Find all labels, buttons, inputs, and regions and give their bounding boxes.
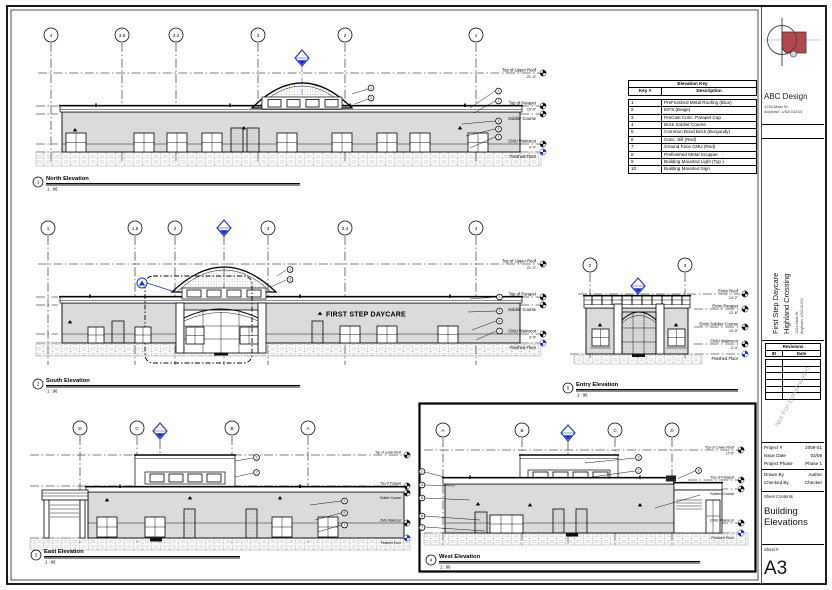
key-row: 7Ground Face CMU (Red) xyxy=(629,144,757,151)
foundation-hatch xyxy=(30,538,410,550)
svg-text:CMU Wainscot: CMU Wainscot xyxy=(710,339,739,344)
svg-text:7: 7 xyxy=(499,329,501,333)
svg-text:17'-6": 17'-6" xyxy=(726,451,734,455)
section-marker-icon xyxy=(153,423,167,439)
svg-text:1 : 96: 1 : 96 xyxy=(577,393,588,398)
key-col-header: Key # xyxy=(629,88,662,95)
svg-text:CMU Wainscot: CMU Wainscot xyxy=(710,519,734,523)
svg-text:5: 5 xyxy=(344,499,346,503)
svg-text:East Elevation: East Elevation xyxy=(44,549,84,555)
svg-text:1 : 96: 1 : 96 xyxy=(47,187,58,192)
svg-text:Entry Soldier Course: Entry Soldier Course xyxy=(699,322,738,327)
svg-text:8: 8 xyxy=(698,469,700,473)
grid-bubble-label: 3.6 xyxy=(119,33,126,38)
svg-text:3: 3 xyxy=(638,456,640,460)
grid-bubble-label: 3.4 xyxy=(342,226,349,231)
svg-text:Top of Parapet: Top of Parapet xyxy=(711,476,734,480)
firm-logo xyxy=(762,10,823,90)
svg-text:1 : 96: 1 : 96 xyxy=(45,560,56,565)
checked-by-field: Checked ByChecker xyxy=(764,479,822,487)
svg-text:2: 2 xyxy=(421,470,423,474)
key-row: 9Building Mounted Light (Typ.) xyxy=(629,159,757,166)
west-elevation-view: A B C D 2 3 5 6 7 3 2 8 Top of L xyxy=(419,404,755,572)
drawn-by-field: Drawn ByAuthor xyxy=(764,471,822,479)
logo-red-shape xyxy=(782,32,806,53)
grid-bubble-label: 3 xyxy=(267,226,270,231)
svg-text:10'-0": 10'-0" xyxy=(729,329,739,333)
north-elevation-view: 4 3.6 3.2 3 2 1 1 2 3 2 5 6 7 To xyxy=(33,28,546,192)
svg-text:6: 6 xyxy=(498,127,500,131)
svg-text:21'-4": 21'-4" xyxy=(527,75,537,79)
svg-text:Top of Parapet: Top of Parapet xyxy=(509,101,537,106)
svg-text:North Elevation: North Elevation xyxy=(46,176,89,182)
svg-text:CMU Wainscot: CMU Wainscot xyxy=(508,329,537,334)
svg-text:Top of Upper Roof: Top of Upper Roof xyxy=(502,259,537,264)
svg-text:Top of Lower Roof: Top of Lower Roof xyxy=(375,451,401,455)
revisions-col-date: Date xyxy=(783,350,821,357)
project-address-line2: Anytown, USA 01234 xyxy=(800,298,804,334)
sheet-contents: Building Elevations xyxy=(764,506,820,528)
entry-vestibule xyxy=(673,483,723,533)
svg-text:7: 7 xyxy=(421,526,423,530)
grid-bubble-label: 3.2 xyxy=(173,33,180,38)
grid-bubble-label: 1 xyxy=(475,33,478,38)
svg-text:Finished Floor: Finished Floor xyxy=(711,536,735,540)
elevation-key-table: Elevation Key Key #Description 1PreFinis… xyxy=(628,80,757,174)
grid-bubble-label: 4 xyxy=(475,226,478,231)
grid-bubble-label: 4 xyxy=(50,33,53,38)
title-block: ABC Design 1234 Main St. Anytown, USA 01… xyxy=(762,6,824,584)
revisions-col-id: ID xyxy=(766,350,783,357)
project-name-line1: First Step Daycare xyxy=(771,273,780,334)
sheet-number-label: Sheet # xyxy=(764,547,778,552)
project-address-line1: 1234 Main St. xyxy=(795,311,799,334)
canopy-structure xyxy=(42,490,88,538)
west-view-title: 4 West Elevation 1 : 96 xyxy=(426,554,700,570)
section-marker-icon xyxy=(295,50,309,66)
svg-text:15'-4": 15'-4" xyxy=(527,107,537,111)
entry-feature xyxy=(614,304,664,357)
building-sign: FIRST STEP DAYCARE xyxy=(326,312,406,319)
svg-text:Entry Parapet: Entry Parapet xyxy=(712,304,738,309)
svg-text:1: 1 xyxy=(289,268,291,272)
south-view-title: 2 South Elevation 1 : 96 xyxy=(33,378,300,394)
key-row: 6Conc. Sill (Red) xyxy=(629,136,757,143)
level-markers: Entry Roof14'-2" Entry Parapet12'-6" Ent… xyxy=(699,289,748,362)
north-view-title: 1 North Elevation 1 : 96 xyxy=(33,176,300,192)
key-row: 4Brick Soldier Course xyxy=(629,122,757,129)
foundation-hatch xyxy=(424,533,748,545)
revisions-title: Revisions xyxy=(766,344,821,351)
svg-text:3'-4": 3'-4" xyxy=(731,346,739,350)
svg-text:6: 6 xyxy=(499,319,501,323)
svg-text:3'-4": 3'-4" xyxy=(529,145,537,149)
svg-text:Finished Floor: Finished Floor xyxy=(711,356,738,361)
key-row: 5Common Bond Brick (Burgundy) xyxy=(629,129,757,136)
east-elevation-view: D C B A 3 2 5 6 7 Top of Lower Roof To xyxy=(30,421,410,565)
key-row: 3PreCast Conc. Parapet Cap xyxy=(629,114,757,121)
svg-text:Soldier Course: Soldier Course xyxy=(710,492,734,496)
grid-bubble-label: 1.8 xyxy=(132,226,139,231)
key-row: 8Prefinished Metal Scupper xyxy=(629,151,757,158)
drawing-sheet: 4 3.6 3.2 3 2 1 1 2 3 2 5 6 7 To xyxy=(0,0,832,590)
svg-text:Soldier Course: Soldier Course xyxy=(508,307,536,312)
grid-bubble-label: 2 xyxy=(174,226,177,231)
svg-text:2: 2 xyxy=(370,96,372,100)
svg-text:5: 5 xyxy=(498,119,500,123)
firm-address: 1234 Main St. Anytown, USA 01234 xyxy=(764,104,802,114)
svg-text:1 : 96: 1 : 96 xyxy=(47,389,58,394)
entry-feature xyxy=(176,303,266,356)
svg-text:2: 2 xyxy=(256,471,258,475)
grid-bubble-label: B xyxy=(520,428,523,433)
grid-bubble-label: 3 xyxy=(684,263,687,268)
svg-text:Top of Parapet: Top of Parapet xyxy=(380,482,401,486)
svg-text:1 : 96: 1 : 96 xyxy=(440,565,451,570)
svg-text:1: 1 xyxy=(370,86,372,90)
south-elevation-view: 1 1.8 2 3 3.4 4 FIRST STEP DAYCARE xyxy=(33,220,546,394)
project-number-field: Project #2009-01 xyxy=(764,444,822,452)
section-marker-icon xyxy=(217,220,231,236)
svg-text:2: 2 xyxy=(498,99,500,103)
svg-text:12'-6": 12'-6" xyxy=(729,311,739,315)
grid-bubble-label: B xyxy=(230,426,233,431)
svg-text:2: 2 xyxy=(289,278,291,282)
svg-text:7: 7 xyxy=(344,523,346,527)
svg-text:West Elevation: West Elevation xyxy=(439,554,481,560)
svg-text:Finished Floor: Finished Floor xyxy=(509,154,536,159)
project-name-line2: Highland Crossing xyxy=(782,274,791,334)
desc-col-header: Description xyxy=(662,88,757,95)
entry-view-title: 5 Entry Elevation 1 : 96 xyxy=(563,382,738,398)
scupper xyxy=(666,476,676,482)
svg-text:Top of Parapet: Top of Parapet xyxy=(509,292,537,297)
elevation-callout-marker xyxy=(137,278,172,291)
key-table-title: Elevation Key xyxy=(629,81,757,88)
svg-text:21'-4": 21'-4" xyxy=(527,266,537,270)
grid-bubble-label: 1 xyxy=(47,226,50,231)
svg-text:Entry Elevation: Entry Elevation xyxy=(576,382,619,388)
svg-text:3: 3 xyxy=(421,483,423,487)
phase-field: Project PhasePhase 1 xyxy=(764,460,822,468)
key-row: 2EIFS (Beige) xyxy=(629,107,757,114)
grid-bubble-label: 2 xyxy=(344,33,347,38)
svg-text:Top of Upper Roof: Top of Upper Roof xyxy=(502,68,537,73)
foundation-hatch xyxy=(36,152,541,166)
svg-text:5: 5 xyxy=(499,309,501,313)
svg-text:South Elevation: South Elevation xyxy=(46,378,90,384)
svg-text:Soldier Course: Soldier Course xyxy=(508,116,536,121)
svg-text:3'-4": 3'-4" xyxy=(529,335,537,339)
svg-text:Finished Floor: Finished Floor xyxy=(509,345,536,350)
entry-elevation-view: 2 3 Entry Roof14'-2" Entry Parapet12'-6"… xyxy=(563,258,748,398)
grid-bubble-label: 2 xyxy=(589,263,592,268)
svg-text:Soldier Course: Soldier Course xyxy=(380,496,401,500)
grid-bubble-label: 3 xyxy=(257,33,260,38)
svg-text:6: 6 xyxy=(421,514,423,518)
svg-text:14'-2": 14'-2" xyxy=(729,296,739,300)
section-marker-icon xyxy=(631,278,645,294)
svg-text:CMU Wainscot: CMU Wainscot xyxy=(508,139,537,144)
key-row: 10Building Mounted Sign xyxy=(629,166,757,173)
section-marker-icon xyxy=(561,425,575,441)
svg-text:Entry Roof: Entry Roof xyxy=(718,289,739,294)
svg-text:CMU Wainscot: CMU Wainscot xyxy=(380,519,401,523)
svg-text:3: 3 xyxy=(256,456,258,460)
sheet-contents-label: Sheet Contents xyxy=(764,494,793,499)
svg-text:3: 3 xyxy=(499,295,501,299)
svg-text:Top of Lower Roof: Top of Lower Roof xyxy=(705,446,734,450)
sheet-number: A3 xyxy=(764,558,787,580)
issue-date-field: Issue Date03/09 xyxy=(764,452,822,460)
svg-text:7: 7 xyxy=(498,135,500,139)
svg-text:2: 2 xyxy=(638,469,640,473)
svg-text:6: 6 xyxy=(344,511,346,515)
svg-text:Finished Floor: Finished Floor xyxy=(381,541,402,545)
foundation-hatch xyxy=(36,343,541,356)
svg-text:3: 3 xyxy=(498,89,500,93)
firm-name: ABC Design xyxy=(764,92,808,101)
east-view-title: 3 East Elevation 1 : 96 xyxy=(31,549,240,565)
key-row: 1PreFinished Metal Roofing (Blue) xyxy=(629,99,757,106)
svg-text:5: 5 xyxy=(421,496,423,500)
